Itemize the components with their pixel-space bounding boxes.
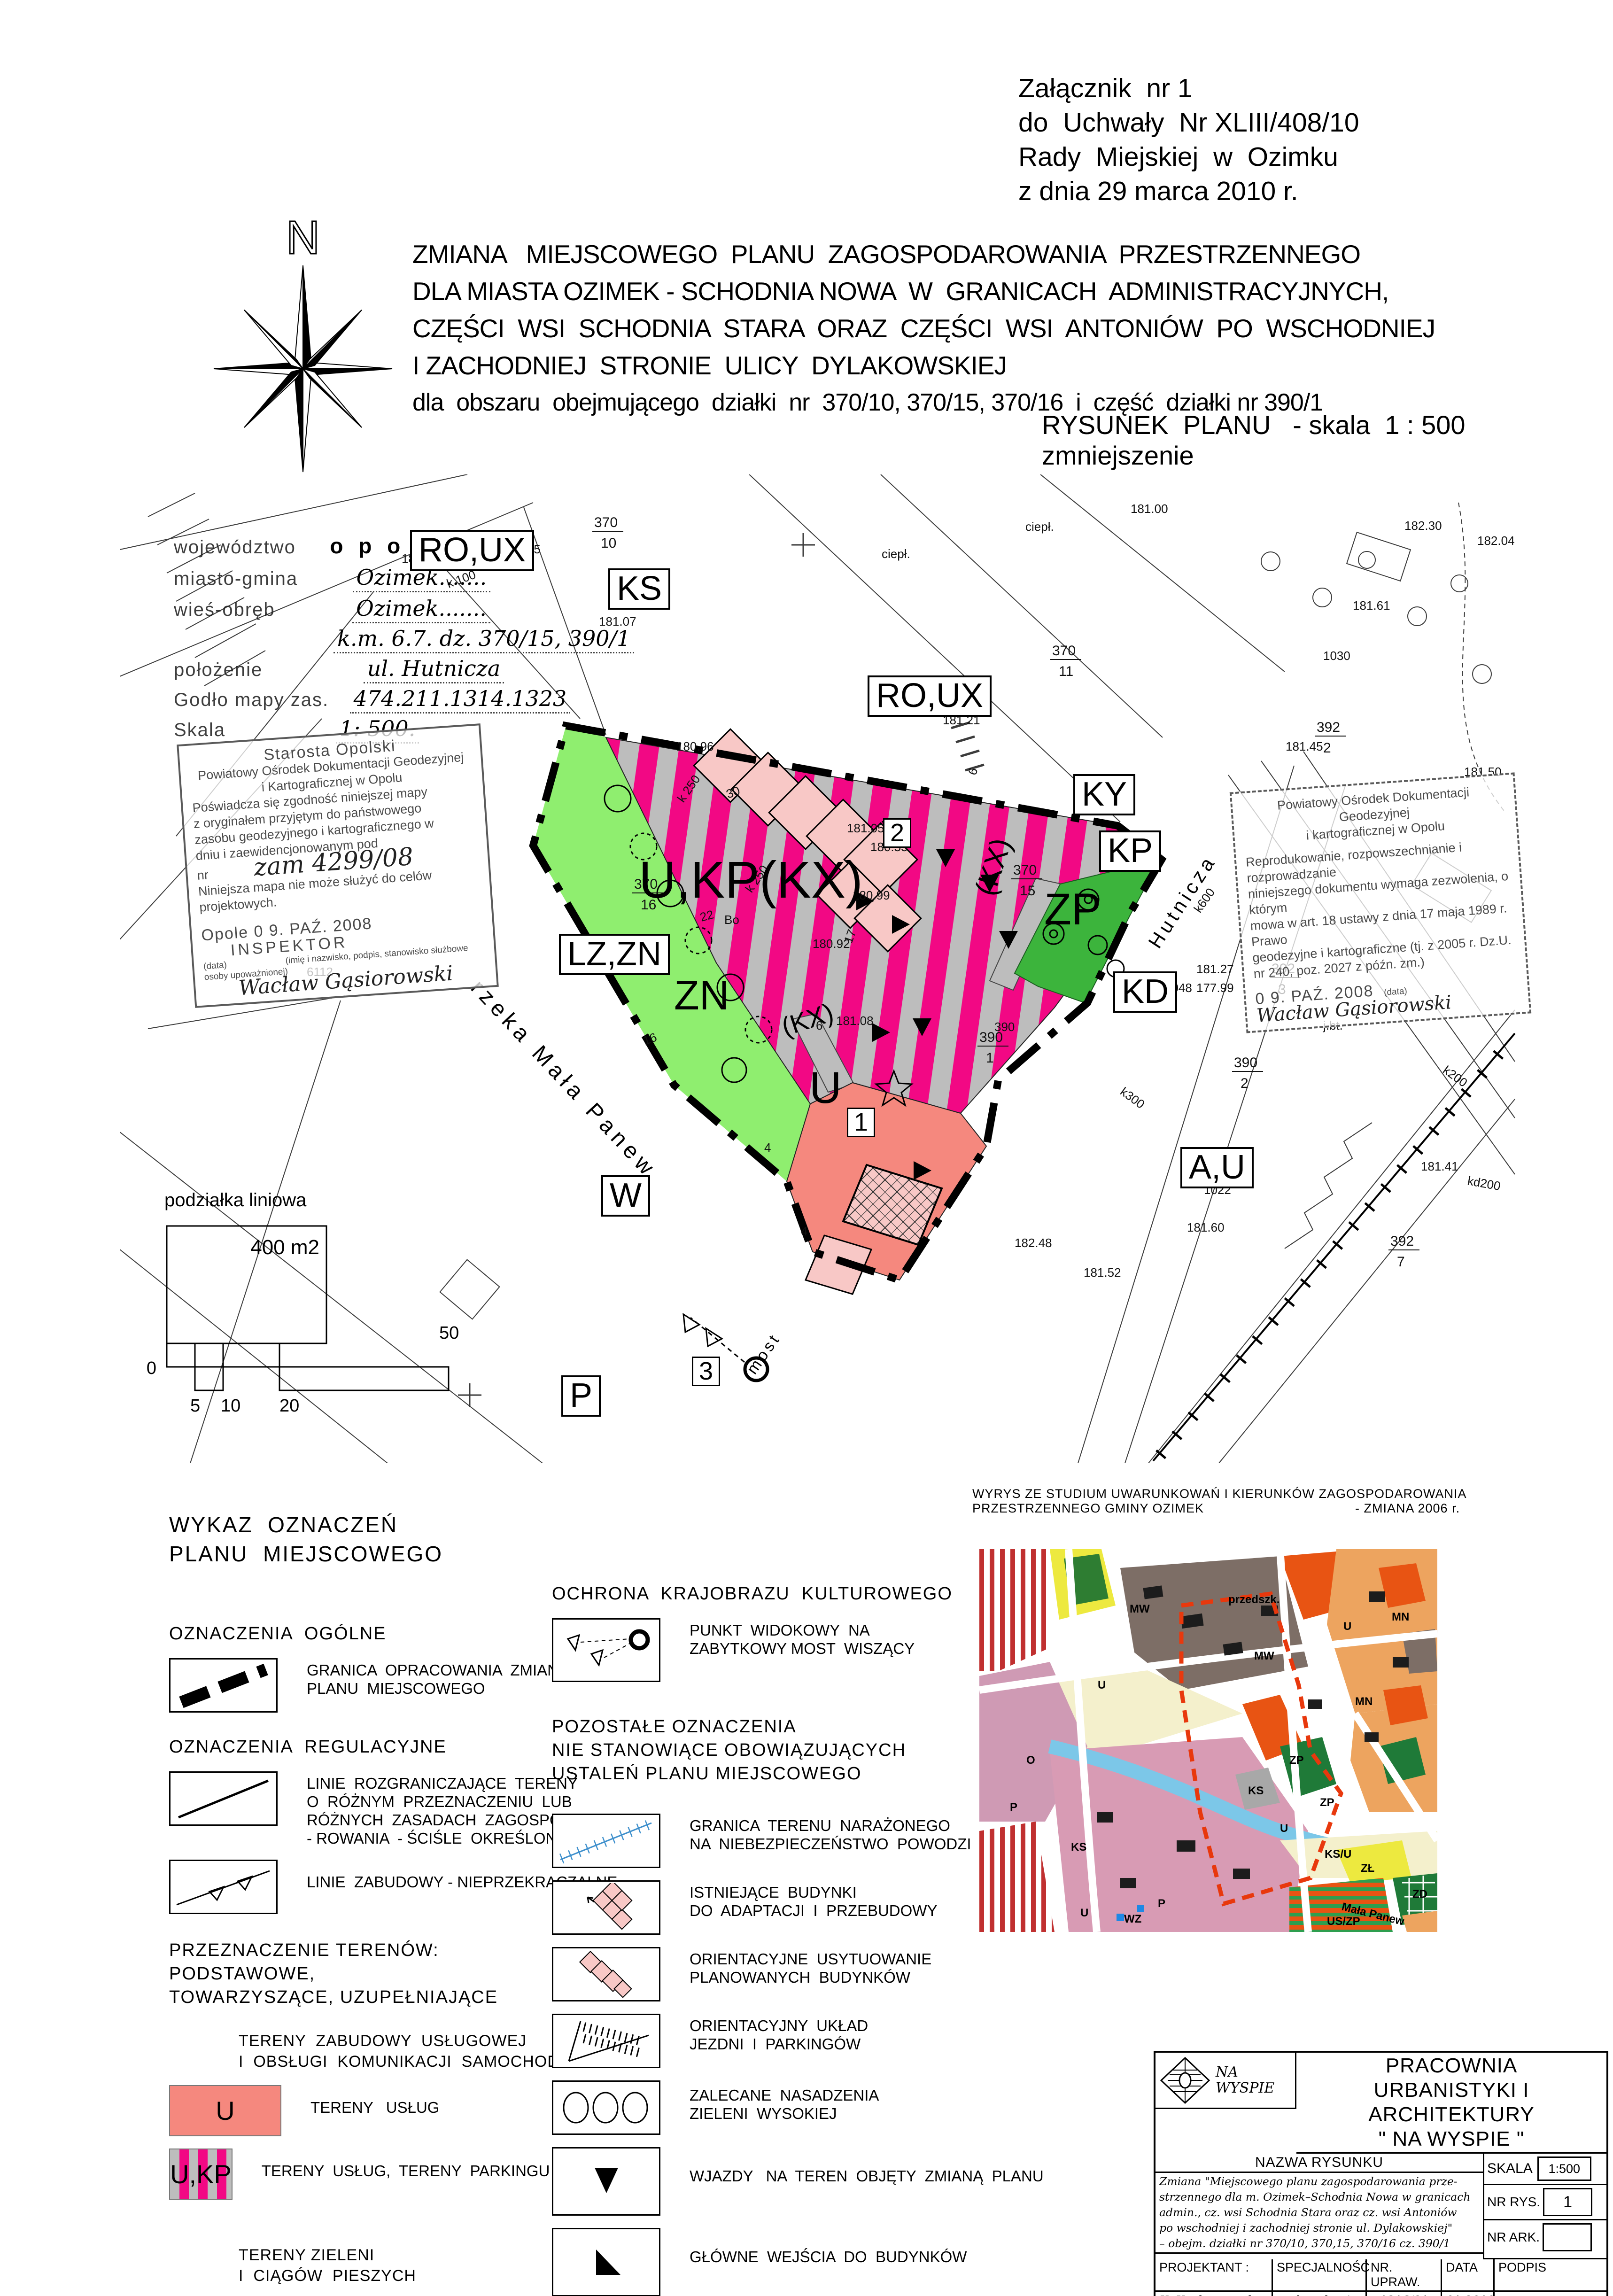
- entrance-symbol-icon: [552, 2228, 660, 2296]
- svg-text:390: 390: [1234, 1055, 1257, 1070]
- zone-label-zn: ZN: [674, 971, 729, 1019]
- zone-box-roux: RO,UX: [868, 675, 992, 717]
- sheet-no-label: NR ARK.: [1487, 2230, 1540, 2245]
- legend-section-przeznaczenie: PRZEZNACZENIE TERENÓW: PODSTAWOWE, TOWAR…: [169, 1939, 540, 2009]
- planned-buildings-symbol-icon: [552, 1947, 660, 2001]
- info-row: Godło mapy zas. 474.211.1314.1323: [174, 686, 570, 711]
- spot-height: 181.60: [1187, 1220, 1225, 1234]
- svg-text:2: 2: [1241, 1076, 1249, 1091]
- legend-section-ochrona: OCHRONA KRAJOBRAZU KULTUROWEGO: [552, 1584, 1022, 1604]
- info-label: województwo: [174, 537, 296, 558]
- company-logo: NA WYSPIE: [1155, 2053, 1296, 2109]
- info-value: k.m. 6.7. dz. 370/15, 390/1: [333, 626, 634, 653]
- legend-middle-column: OCHRONA KRAJOBRAZU KULTUROWEGO PUNKT WID…: [552, 1584, 1022, 2296]
- legend-item-jezdnie: ORIENTACYJNY UKŁAD JEZDNI I PARKINGÓW: [552, 2014, 1022, 2068]
- u-swatch: U: [169, 2085, 281, 2136]
- study-inset-map: MWMWMNMNUUUUOPPKSKSZPZPKS/UZŁZDUS/ZPWZpr…: [979, 1549, 1437, 1932]
- spot-height: 181.08: [836, 1014, 874, 1028]
- scalebar-tick: 0: [147, 1358, 156, 1378]
- building-number-box: 2: [883, 818, 911, 848]
- inset-label: U: [1280, 1822, 1288, 1835]
- info-value: ul. Hutnicza: [364, 656, 504, 683]
- legend-item-label: ZALECANE NASADZENIA ZIELENI WYSOKIEJ: [690, 2080, 879, 2123]
- legend-item-zabudowy: LINIE ZABUDOWY - NIEPRZEKRACZALNE: [169, 1860, 540, 1914]
- zone-box-roux: RO,UX: [410, 530, 534, 571]
- boundary-symbol-icon: [169, 1658, 278, 1713]
- drawing-no-label: NR RYS.: [1487, 2195, 1540, 2210]
- plan-map: podziałka liniowa 400 m2 0 5 10 20 50 18…: [120, 474, 1517, 1463]
- zone-box-lzzn: LZ,ZN: [559, 934, 670, 975]
- projektant-signature: [1495, 2292, 1606, 2296]
- inset-label: ZP: [1320, 1796, 1334, 1809]
- inset-label: MN: [1392, 1611, 1409, 1623]
- svg-text:370: 370: [1052, 643, 1076, 659]
- attachment-header: Załącznik nr 1 do Uchwały Nr XLIII/408/1…: [1018, 71, 1359, 209]
- viewpoint-symbol-icon: [552, 1618, 660, 1682]
- legend-item-planowane-budynki: ORIENTACYJNE USYTUOWANIE PLANOWANYCH BUD…: [552, 1947, 1022, 2001]
- roads-parking-symbol-icon: [552, 2014, 660, 2068]
- legend-item-powodz: GRANICA TERENU NARAŻONEGO NA NIEBEZPIECZ…: [552, 1814, 1022, 1868]
- spot-height: ciepł.: [882, 547, 910, 561]
- legend-item-wejscia: GŁÓWNE WEJŚCIA DO BUDYNKÓW: [552, 2228, 1022, 2296]
- info-label: położenie: [174, 659, 263, 680]
- spot-height: 182.30: [1404, 519, 1442, 533]
- scalebar-tick: 5: [190, 1396, 200, 1416]
- spot-height: kd200: [1466, 1173, 1502, 1193]
- inset-label: ZP: [1289, 1754, 1304, 1767]
- legend-subsection-uslugowa: TERENY ZABUDOWY USŁUGOWEJ I OBSŁUGI KOMU…: [239, 2031, 540, 2072]
- entry-symbol-icon: [552, 2147, 660, 2216]
- scalebar-title: podziałka liniowa: [164, 1190, 307, 1210]
- legend-item-label: TERENY USŁUG: [310, 2085, 439, 2117]
- info-label: Skala: [174, 720, 225, 740]
- inset-label: WZ: [1124, 1913, 1141, 1925]
- inset-label: U: [1343, 1620, 1351, 1633]
- legend-item-label: TERENY USŁUG, TERENY PARKINGU: [262, 2149, 550, 2180]
- inset-label: KS/U: [1325, 1848, 1351, 1861]
- scalebar-tick: 50: [439, 1323, 459, 1343]
- svg-text:370: 370: [1013, 862, 1037, 878]
- inset-label: P: [1010, 1801, 1017, 1814]
- svg-text:392: 392: [1317, 720, 1340, 735]
- spot-height: 4: [801, 1224, 807, 1238]
- parcel-number: 37010: [592, 515, 623, 551]
- logo-text-wyspie: WYSPIE: [1216, 2080, 1274, 2096]
- legend-left-column: WYKAZ OZNACZEŃ PLANU MIEJSCOWEGO OZNACZE…: [169, 1510, 540, 2296]
- projektant-upraw: 1216/91: [1367, 2292, 1442, 2296]
- spot-height: k200: [1440, 1063, 1470, 1090]
- legend-item-label: LINIE ROZGRANICZAJĄCE TERENY O RÓŻNYM PR…: [307, 1771, 589, 1847]
- drawing-caption: RYSUNEK PLANU - skala 1 : 500 zmniejszen…: [1042, 410, 1466, 471]
- stamp-line: nr: [197, 868, 209, 883]
- inset-label: U: [1098, 1679, 1106, 1691]
- spot-height: 181.45: [1286, 739, 1323, 753]
- bridge-label: most: [743, 1330, 784, 1378]
- inset-label: U: [1080, 1907, 1088, 1919]
- caption-scale: RYSUNEK PLANU - skala 1 : 500: [1042, 410, 1466, 440]
- title-line: DLA MIASTA OZIMEK - SCHODNIA NOWA W GRAN…: [412, 273, 1435, 310]
- spot-height: 177.99: [1196, 981, 1234, 995]
- spot-height: 182.48: [1015, 1236, 1052, 1250]
- spot-height: 1030: [1323, 649, 1350, 663]
- legend-item-u: U TERENY USŁUG: [169, 2085, 540, 2136]
- spot-height: 181.05: [847, 821, 884, 835]
- svg-text:2: 2: [1323, 740, 1331, 756]
- zone-box-kp: KP: [1099, 830, 1161, 872]
- company-line: PRACOWNIA: [1300, 2054, 1603, 2078]
- header-line: do Uchwały Nr XLIII/408/10: [1018, 106, 1359, 140]
- svg-text:10: 10: [601, 535, 616, 551]
- svg-text:1: 1: [986, 1050, 994, 1066]
- flood-boundary-symbol-icon: [552, 1814, 660, 1868]
- title-line: I ZACHODNIEJ STRONIE ULICY DYLAKOWSKIEJ: [412, 347, 1435, 384]
- spot-height: 182.04: [1477, 534, 1515, 548]
- study-inset-drawing: MWMWMNMNUUUUOPPKSKSZPZPKS/UZŁZDUS/ZPWZpr…: [979, 1549, 1437, 1932]
- compass-rose-icon: N: [202, 197, 404, 479]
- col-header-projektant: PROJEKTANT :: [1155, 2259, 1273, 2292]
- legend-item-nasadzenia: ZALECANE NASADZENIA ZIELENI WYSOKIEJ: [552, 2080, 1022, 2135]
- study-caption-text: PRZESTRZENNEGO GMINY OZIMEK: [972, 1501, 1204, 1515]
- linear-scale: podziałka liniowa 400 m2 0 5 10 20 50: [147, 1190, 459, 1416]
- inset-label: MW: [1130, 1603, 1150, 1615]
- legend-item-istniejace-budynki: ISTNIEJĄCE BUDYNKI DO ADAPTACJI I PRZEBU…: [552, 1880, 1022, 1935]
- info-row: k.m. 6.7. dz. 370/15, 390/1: [174, 626, 634, 651]
- zone-label-ukpkx: U,KP(KX): [639, 850, 863, 910]
- study-caption-line: WYRYS ZE STUDIUM UWARUNKOWAŃ I KIERUNKÓW…: [972, 1487, 1512, 1501]
- building-line-symbol-icon: [169, 1860, 278, 1914]
- compass-north-letter: N: [286, 211, 320, 264]
- spot-height: 181.00: [1131, 502, 1168, 516]
- title-block: NA WYSPIE PRACOWNIA URBANISTYKI I ARCHIT…: [1154, 2051, 1608, 2296]
- study-caption-change: - ZMIANA 2006 r.: [1355, 1501, 1460, 1516]
- info-row: położenie ul. Hutnicza: [174, 656, 504, 681]
- ukp-swatch-code: U,KP: [170, 2159, 232, 2189]
- projektant-date: 01.2010: [1442, 2292, 1495, 2296]
- info-label: Godło mapy zas.: [174, 690, 329, 710]
- inset-label: MN: [1355, 1695, 1373, 1708]
- info-row: wieś-obręb Ozimek.......: [174, 596, 490, 621]
- zone-box-kd: KD: [1113, 971, 1177, 1013]
- inset-label: US/ZP: [1327, 1915, 1360, 1928]
- spot-height: Bo: [724, 913, 739, 927]
- info-label: miasto-gmina: [174, 568, 298, 589]
- existing-buildings-symbol-icon: [552, 1880, 660, 1935]
- col-header-data: DATA: [1442, 2259, 1495, 2292]
- parcel-number: 37011: [1050, 643, 1081, 679]
- company-line: " NA WYSPIE ": [1300, 2127, 1603, 2151]
- col-header-upraw: NR. UPRAW.: [1367, 2259, 1442, 2292]
- spot-height: 181.41: [1421, 1159, 1458, 1173]
- zone-label-zp: ZP: [1044, 884, 1101, 935]
- plan-title: ZMIANA MIEJSCOWEGO PLANU ZAGOSPODAROWANI…: [412, 236, 1435, 421]
- legend-item-punkt-widokowy: PUNKT WIDOKOWY NA ZABYTKOWY MOST WISZĄCY: [552, 1618, 1022, 1682]
- zone-box-au: A,U: [1180, 1147, 1254, 1188]
- inset-label: KS: [1071, 1841, 1086, 1854]
- inset-label: przedszk.: [1228, 1593, 1280, 1606]
- study-caption-line: PRZESTRZENNEGO GMINY OZIMEK - ZMIANA 200…: [972, 1501, 1512, 1516]
- document-page: Załącznik nr 1 do Uchwały Nr XLIII/408/1…: [0, 0, 1613, 2296]
- na-wyspie-logo-icon: [1159, 2056, 1211, 2105]
- embankment-ticks: [1153, 1033, 1515, 1461]
- inset-label: O: [1026, 1754, 1035, 1767]
- svg-text:390: 390: [979, 1030, 1003, 1045]
- caption-reduction: zmniejszenie: [1042, 440, 1466, 471]
- projektant-spec: arch. urbanista: [1273, 2292, 1367, 2296]
- spot-height: 181.27: [1196, 962, 1234, 976]
- greenery-symbol-icon: [552, 2080, 660, 2135]
- legend-item-label: ISTNIEJĄCE BUDYNKI DO ADAPTACJI I PRZEBU…: [690, 1880, 937, 1920]
- company-name: PRACOWNIA URBANISTYKI I ARCHITEKTURY " N…: [1296, 2053, 1606, 2154]
- info-value: Ozimek.......: [352, 596, 490, 623]
- scalebar-area: 400 m2: [250, 1236, 319, 1259]
- dividing-line-symbol-icon: [169, 1771, 278, 1826]
- sheet-no-value: [1543, 2223, 1592, 2251]
- svg-text:392: 392: [1390, 1233, 1414, 1249]
- compass-rose: N: [202, 197, 404, 479]
- parcel-number: 3927: [1388, 1233, 1419, 1270]
- stamp-date-sub: (data): [203, 960, 227, 971]
- parcel-number: 3902: [1232, 1055, 1263, 1091]
- stamp-reproduction: Powiatowy Ośrodek Dokumentacji Geodezyjn…: [1230, 772, 1531, 1033]
- scalebar-tick: 10: [221, 1396, 240, 1416]
- header-line: Załącznik nr 1: [1018, 71, 1359, 106]
- legend-item-label: ORIENTACYJNE USYTUOWANIE PLANOWANYCH BUD…: [690, 1947, 931, 1986]
- company-line: URBANISTYKI I ARCHITEKTURY: [1300, 2078, 1603, 2127]
- spot-height: 181.52: [1084, 1265, 1121, 1280]
- building-number-box: 3: [692, 1357, 720, 1386]
- drawing-name-text: Zmiana "Miejscowego planu zagospodarowan…: [1155, 2173, 1483, 2254]
- inset-label: ZD: [1412, 1888, 1427, 1900]
- logo-text-na: NA: [1216, 2064, 1274, 2080]
- inset-label: P: [1158, 1897, 1165, 1910]
- header-line: z dnia 29 marca 2010 r.: [1018, 174, 1359, 209]
- legend-item-ukp: U,KP TERENY USŁUG, TERENY PARKINGU: [169, 2149, 540, 2200]
- legend-subsection-zielen: TERENY ZIELENI I CIĄGÓW PIESZYCH: [239, 2245, 540, 2286]
- svg-text:370: 370: [594, 515, 618, 530]
- title-line: ZMIANA MIEJSCOWEGO PLANU ZAGOSPODAROWANI…: [412, 236, 1435, 273]
- col-header-specjalnosc: SPECJALNOŚĆ: [1273, 2259, 1367, 2292]
- zone-label-u: U: [809, 1063, 842, 1114]
- inset-label: KS: [1248, 1784, 1264, 1797]
- info-label: wieś-obręb: [174, 599, 275, 620]
- legend-heading: PLANU MIEJSCOWEGO: [169, 1539, 540, 1568]
- legend-section-regulatory: OZNACZENIA REGULACYJNE: [169, 1737, 540, 1757]
- legend-item-label: GRANICA TERENU NARAŻONEGO NA NIEBEZPIECZ…: [690, 1814, 971, 1853]
- projektant-name: K. Kucharzewska: [1155, 2292, 1273, 2296]
- header-line: Rady Miejskiej w Ozimku: [1018, 140, 1359, 174]
- col-header-podpis: PODPIS: [1495, 2259, 1606, 2292]
- zone-box-ky: KY: [1073, 774, 1135, 815]
- legend-item-granica: GRANICA OPRACOWANIA ZMIANY PLANU MIEJSCO…: [169, 1658, 540, 1713]
- zone-box-p: P: [561, 1375, 601, 1417]
- legend-heading: WYKAZ OZNACZEŃ: [169, 1510, 540, 1539]
- legend-item-wjazdy: WJAZDY NA TEREN OBJĘTY ZMIANĄ PLANU: [552, 2147, 1022, 2216]
- svg-text:11: 11: [1059, 664, 1073, 679]
- legend-item-label: GRANICA OPRACOWANIA ZMIANY PLANU MIEJSCO…: [307, 1658, 569, 1698]
- drawing-no-value: 1: [1543, 2188, 1592, 2216]
- legend-item-label: GŁÓWNE WEJŚCIA DO BUDYNKÓW: [690, 2228, 967, 2266]
- u-swatch-code: U: [216, 2095, 234, 2126]
- legend-item-rozgraniczajace: LINIE ROZGRANICZAJĄCE TERENY O RÓŻNYM PR…: [169, 1771, 540, 1847]
- zone-box-w: W: [601, 1175, 650, 1217]
- spot-height: 4: [764, 1140, 771, 1155]
- legend-section-pozostale: POZOSTAŁE OZNACZENIA NIE STANOWIĄCE OBOW…: [552, 1715, 1022, 1785]
- legend-item-label: WJAZDY NA TEREN OBJĘTY ZMIANĄ PLANU: [690, 2147, 1044, 2185]
- spot-height: ciepł.: [1025, 520, 1054, 534]
- building-number-box: 1: [847, 1108, 875, 1137]
- stamp-starosta: Starosta Opolski Powiatowy Ośrodek Dokum…: [177, 723, 499, 1008]
- legend-item-label: ORIENTACYJNY UKŁAD JEZDNI I PARKINGÓW: [690, 2014, 868, 2053]
- drawing-name-header: NAZWA RYSUNKU: [1155, 2154, 1483, 2173]
- ukp-swatch: U,KP: [169, 2149, 233, 2200]
- spot-height: 180.96: [676, 739, 714, 753]
- study-caption: WYRYS ZE STUDIUM UWARUNKOWAŃ I KIERUNKÓW…: [972, 1487, 1512, 1516]
- inset-label: MW: [1254, 1650, 1274, 1662]
- inset-label: ZŁ: [1361, 1862, 1374, 1875]
- legend-section-general: OZNACZENIA OGÓLNE: [169, 1624, 540, 1644]
- spot-height: 181.61: [1353, 598, 1390, 613]
- zone-box-ks: KS: [608, 568, 670, 610]
- scale-label: SKALA: [1487, 2161, 1533, 2177]
- info-value: 474.211.1314.1323: [350, 686, 571, 714]
- svg-text:7: 7: [1397, 1254, 1405, 1270]
- spot-height: k300: [1117, 1085, 1147, 1111]
- legend-item-label: PUNKT WIDOKOWY NA ZABYTKOWY MOST WISZĄCY: [690, 1618, 915, 1658]
- title-line: CZĘŚCI WSI SCHODNIA STARA ORAZ CZĘŚCI WS…: [412, 310, 1435, 347]
- svg-text:15: 15: [1020, 883, 1035, 899]
- scalebar-tick: 20: [279, 1396, 299, 1416]
- scale-value: 1:500: [1537, 2156, 1591, 2181]
